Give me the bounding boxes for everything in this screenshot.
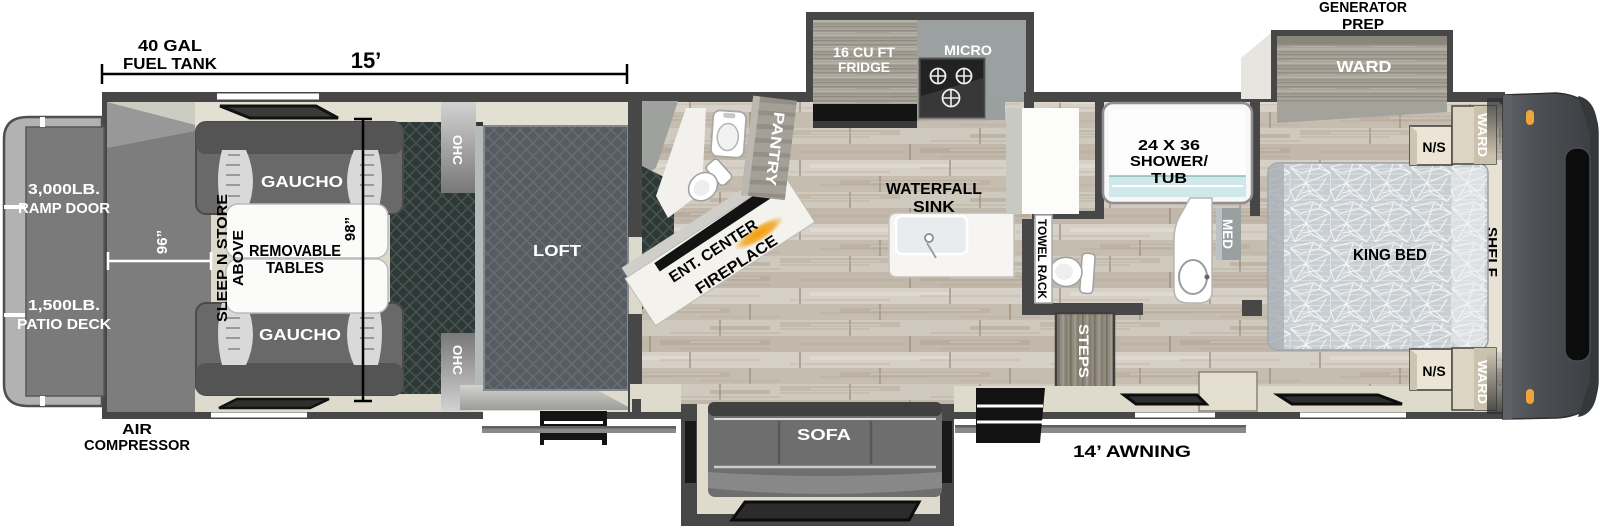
svg-text:TABLES: TABLES <box>266 260 324 277</box>
svg-text:PATIO DECK: PATIO DECK <box>17 316 111 333</box>
svg-text:WARD: WARD <box>1337 59 1392 76</box>
svg-text:PREP: PREP <box>1342 16 1384 33</box>
svg-text:TOWEL RACK: TOWEL RACK <box>1035 219 1047 300</box>
svg-text:1,500LB.: 1,500LB. <box>28 297 100 314</box>
svg-text:WATERFALL: WATERFALL <box>886 181 982 198</box>
svg-text:N/S: N/S <box>1422 139 1445 155</box>
svg-text:OHC: OHC <box>450 345 465 376</box>
svg-text:GENERATOR: GENERATOR <box>1319 0 1407 16</box>
svg-text:COMPRESSOR: COMPRESSOR <box>84 438 191 454</box>
svg-text:GAUCHO: GAUCHO <box>261 174 343 191</box>
svg-text:SLEEP N STORE: SLEEP N STORE <box>215 194 231 322</box>
svg-text:14’ AWNING: 14’ AWNING <box>1073 443 1191 461</box>
svg-text:SHOWER/: SHOWER/ <box>1130 154 1208 170</box>
svg-text:SINK: SINK <box>913 199 956 216</box>
svg-text:MED: MED <box>1220 219 1235 249</box>
svg-text:KING BED: KING BED <box>1353 247 1427 264</box>
svg-text:96”: 96” <box>154 230 171 254</box>
svg-text:98”: 98” <box>342 217 359 241</box>
svg-text:AIR: AIR <box>122 422 153 438</box>
svg-text:SOFA: SOFA <box>797 427 851 444</box>
svg-text:TUB: TUB <box>1151 171 1187 187</box>
svg-text:ABOVE: ABOVE <box>231 230 247 286</box>
svg-text:REMOVABLE: REMOVABLE <box>249 243 341 260</box>
svg-text:RAMP DOOR: RAMP DOOR <box>18 200 110 217</box>
svg-text:24 X 36: 24 X 36 <box>1138 138 1200 154</box>
svg-text:GAUCHO: GAUCHO <box>259 327 341 344</box>
svg-text:3,000LB.: 3,000LB. <box>28 181 100 198</box>
svg-text:40 GAL: 40 GAL <box>138 38 202 55</box>
svg-text:STEPS: STEPS <box>1076 324 1091 378</box>
svg-text:FUEL TANK: FUEL TANK <box>123 56 218 73</box>
svg-text:16 CU FT: 16 CU FT <box>833 45 896 60</box>
svg-text:MICRO: MICRO <box>944 42 992 58</box>
svg-text:N/S: N/S <box>1422 363 1445 379</box>
svg-text:FRIDGE: FRIDGE <box>838 60 890 75</box>
svg-text:OHC: OHC <box>450 135 465 166</box>
svg-text:LOFT: LOFT <box>533 243 582 260</box>
svg-text:15’: 15’ <box>351 48 382 73</box>
